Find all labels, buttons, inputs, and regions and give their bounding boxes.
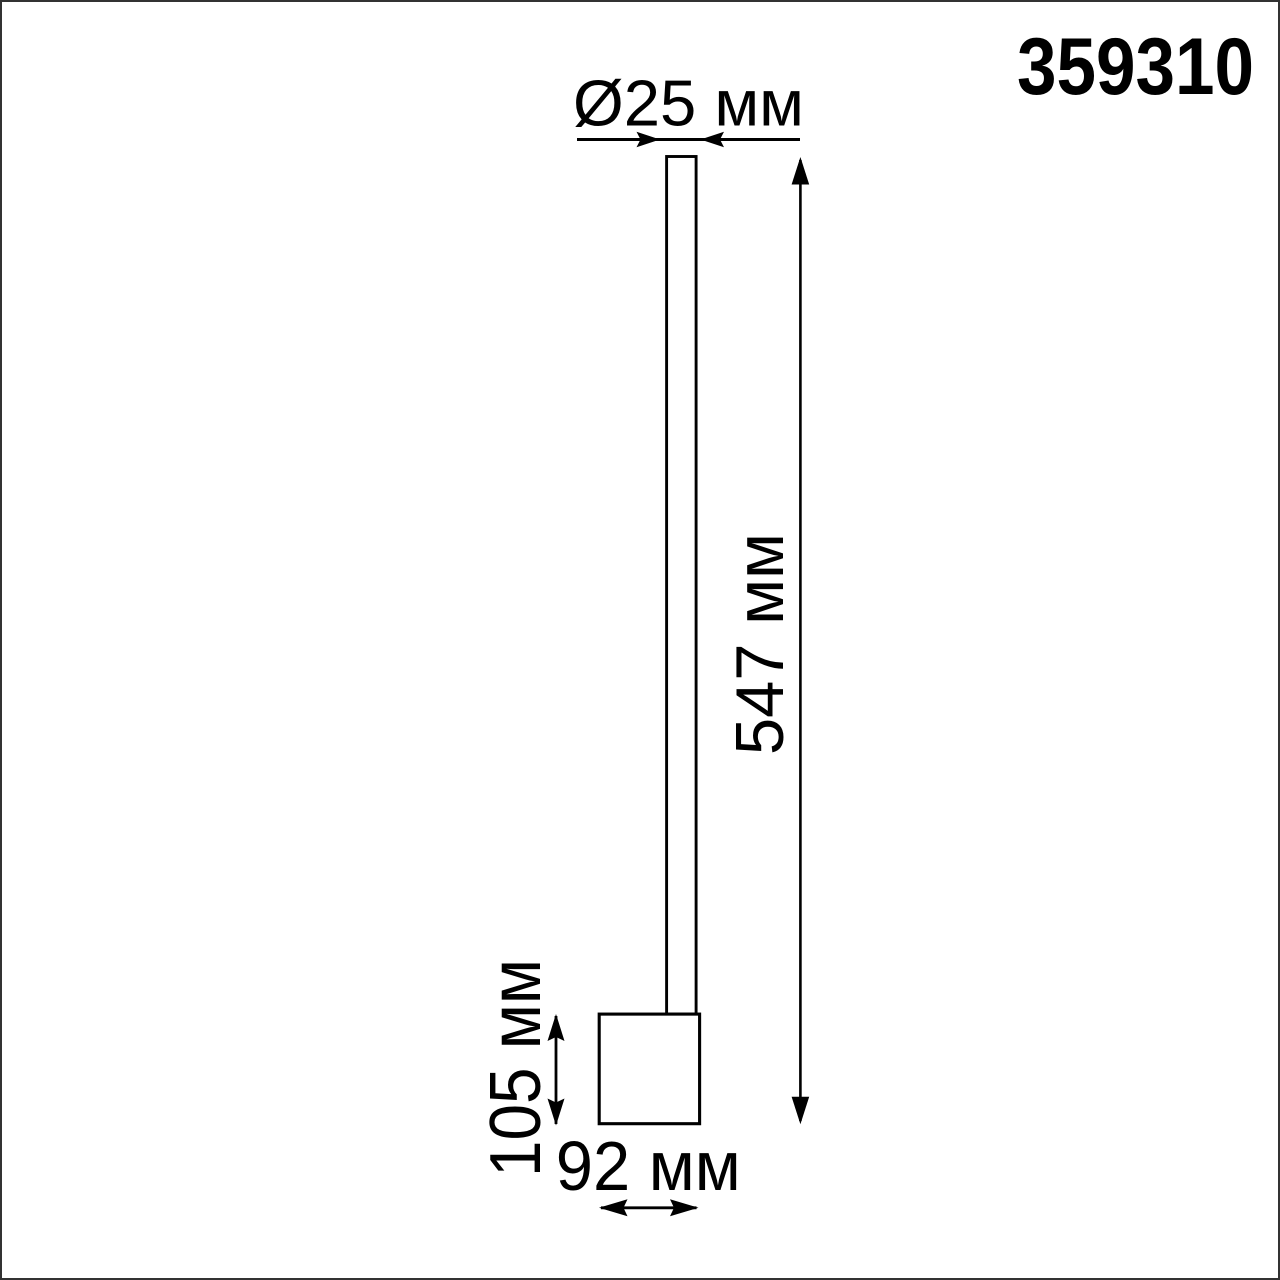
svg-text:Ø25 мм: Ø25 мм <box>573 67 804 140</box>
svg-text:105 мм: 105 мм <box>476 959 556 1177</box>
svg-text:547 мм: 547 мм <box>722 533 798 755</box>
svg-text:92 мм: 92 мм <box>556 1127 741 1205</box>
svg-text:359310: 359310 <box>1017 22 1254 112</box>
